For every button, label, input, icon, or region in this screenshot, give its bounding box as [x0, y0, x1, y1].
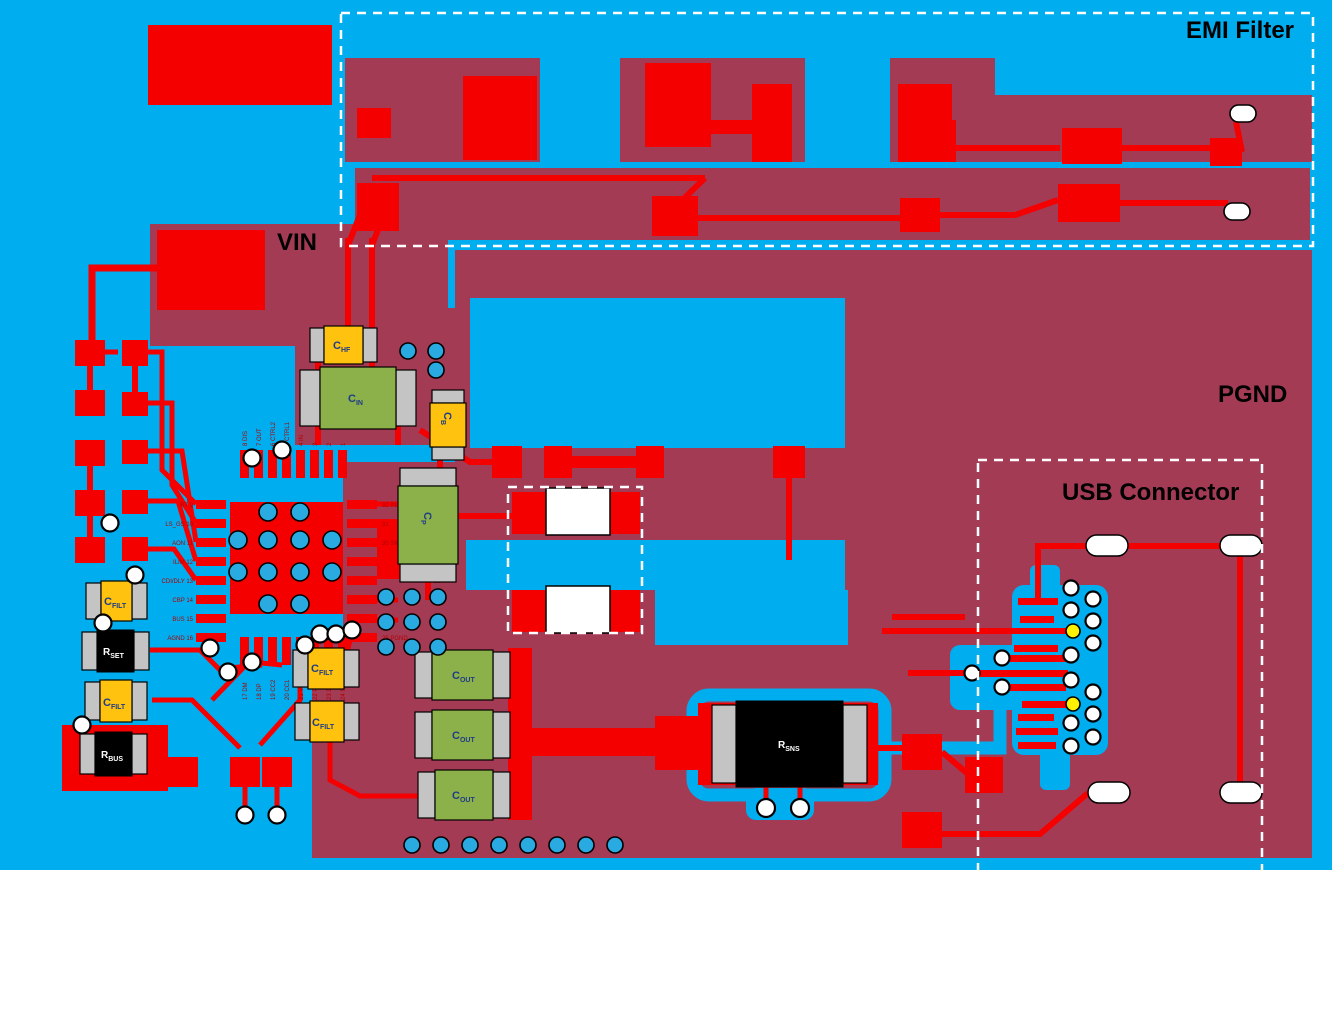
svg-text:6 CTRL2: 6 CTRL2: [271, 421, 277, 446]
component-rbus: RBUS: [80, 732, 147, 776]
component-cfilt-4: CFILT: [295, 701, 359, 742]
component-cin: CIN: [300, 367, 416, 429]
component-cfilt-1: CFILT: [86, 581, 147, 621]
component-cfilt-2: CFILT: [85, 680, 147, 722]
svg-text:LS_GS 10: LS_GS 10: [165, 522, 193, 528]
svg-text:4 IN: 4 IN: [299, 435, 305, 446]
component-rsns: RSNS: [712, 701, 867, 787]
svg-text:18 DP: 18 DP: [257, 683, 263, 700]
svg-text:8 DIS: 8 DIS: [243, 431, 249, 446]
component-cp: CP: [398, 468, 458, 582]
pgnd-label: PGND: [1218, 381, 1287, 408]
component-ferrite-1: [546, 488, 610, 535]
legend: Top Trace/Plane Inner GND Plane VIA to S…: [0, 870, 1332, 1016]
pcb-layout-figure: { "board": { "labels": { "emi": "EMI Fil…: [0, 0, 1332, 1016]
component-ferrite-2: [546, 586, 610, 633]
component-chf: CHF: [310, 326, 377, 364]
svg-text:AON 11: AON 11: [172, 541, 194, 547]
strap-via-yellow: [1066, 697, 1080, 711]
ic-thermal-pad: [230, 502, 343, 614]
vin-label: VIN: [277, 229, 317, 256]
usb-connector-label: USB Connector: [1062, 479, 1239, 506]
component-cout-1: COUT: [415, 650, 510, 700]
svg-text:RT 9: RT 9: [180, 503, 193, 509]
svg-text:20 CC1: 20 CC1: [285, 679, 291, 700]
component-cb: CB: [430, 390, 466, 460]
component-cout-2: COUT: [415, 710, 510, 760]
svg-text:CDI/DLY 13: CDI/DLY 13: [162, 579, 194, 585]
emi-filter-label: EMI Filter: [1186, 17, 1294, 44]
svg-text:AGND 16: AGND 16: [167, 636, 193, 642]
component-rset: RSET: [82, 630, 149, 672]
svg-text:17 DM: 17 DM: [243, 682, 249, 700]
strap-via-yellow: [1066, 624, 1080, 638]
svg-text:ILIM 12: ILIM 12: [173, 560, 194, 566]
svg-text:CBP 14: CBP 14: [172, 598, 193, 604]
svg-text:7 OUT: 7 OUT: [257, 428, 263, 446]
component-cout-3: COUT: [418, 770, 510, 820]
svg-text:19 CC2: 19 CC2: [271, 679, 277, 700]
svg-text:BUS 15: BUS 15: [172, 617, 193, 623]
svg-text:31: 31: [382, 522, 389, 528]
pcb-board: RT 9 LS_GS 10 AON 11 ILIM 12 CDI/DLY 13 …: [0, 0, 1332, 870]
